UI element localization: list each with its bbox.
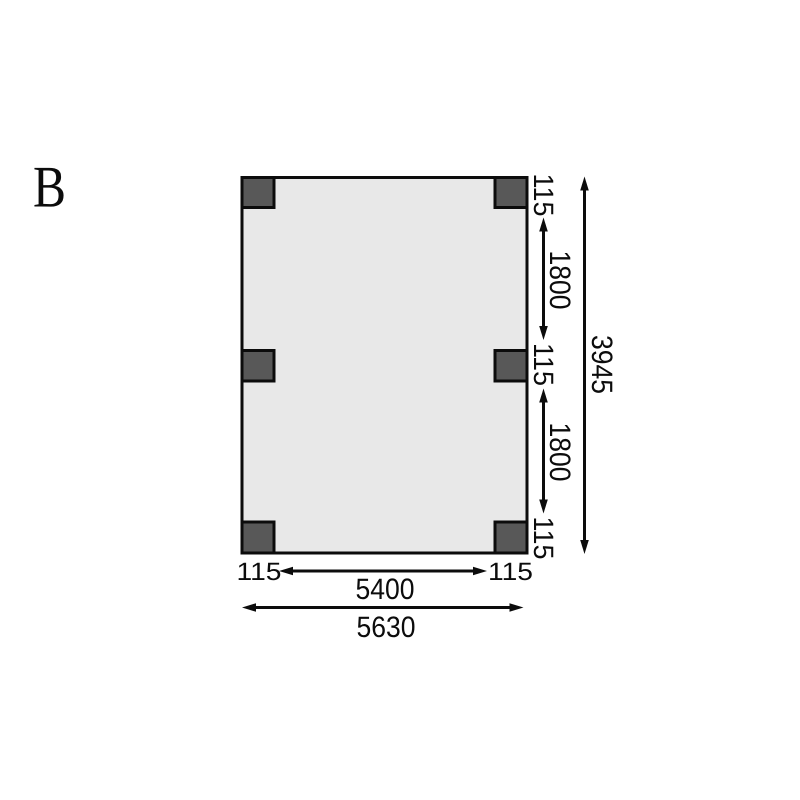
svg-text:115: 115 xyxy=(488,558,533,586)
svg-text:5630: 5630 xyxy=(357,611,416,644)
svg-text:115: 115 xyxy=(528,343,559,386)
svg-text:3945: 3945 xyxy=(585,335,618,394)
svg-text:115: 115 xyxy=(528,174,559,217)
svg-text:B: B xyxy=(33,154,66,220)
svg-text:1800: 1800 xyxy=(543,251,576,310)
svg-text:5400: 5400 xyxy=(356,573,415,606)
svg-text:1800: 1800 xyxy=(543,423,576,482)
svg-text:115: 115 xyxy=(237,558,282,586)
svg-text:115: 115 xyxy=(528,517,559,560)
